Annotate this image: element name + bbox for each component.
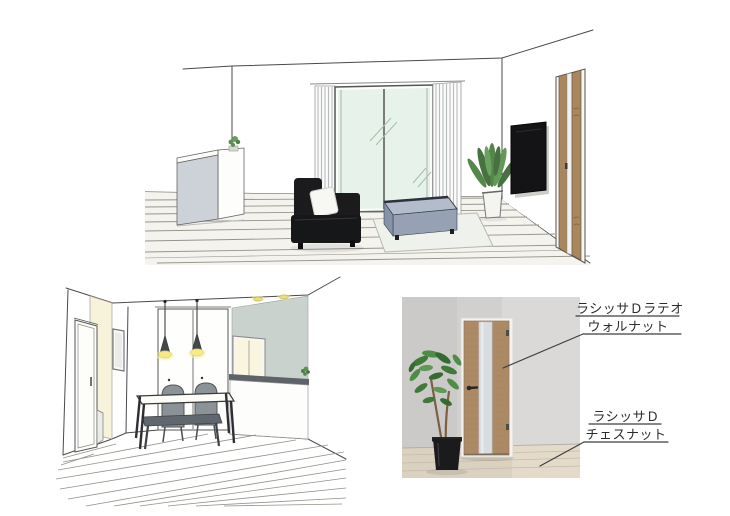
living-room-sketch (145, 13, 665, 265)
interior-presentation-canvas: ラシッサＤラテオ ウォルナット ラシッサＤ チェスナット (0, 0, 730, 516)
sketch-interior-door (556, 69, 585, 263)
door-product-photo (402, 297, 580, 478)
walnut-door (461, 318, 513, 457)
counter-cabinet (177, 136, 244, 226)
plant-pot (483, 191, 502, 218)
hallway-step (97, 410, 103, 444)
diagonal-floor-planks (56, 434, 346, 506)
counter-front (230, 380, 308, 439)
door-label-line1: ラシッサＤラテオ (576, 300, 680, 318)
sketch-door-handle (565, 163, 568, 169)
dining-room-sketch (28, 272, 348, 507)
door-label-line2: ウォルナット (576, 318, 680, 336)
dining-chair-2 (195, 383, 217, 440)
curtain-right (433, 82, 461, 215)
wall-mirror (113, 329, 124, 371)
floor-label-line2: チェスナット (584, 426, 668, 444)
kitchen-counter-wall (229, 296, 310, 439)
floor-product-label: ラシッサＤ チェスナット (584, 408, 668, 444)
door-product-label: ラシッサＤラテオ ウォルナット (576, 300, 680, 336)
plant-pot (432, 437, 462, 470)
door-hinge-bottom (506, 424, 509, 430)
door-hinge-top (506, 330, 509, 336)
floor-label-line1: ラシッサＤ (584, 408, 668, 426)
dining-chair-1 (162, 385, 184, 442)
sofa-cushion (310, 187, 339, 217)
wall-tv (511, 122, 549, 198)
door-glass-strip (479, 322, 492, 454)
kitchen-window (233, 336, 265, 380)
